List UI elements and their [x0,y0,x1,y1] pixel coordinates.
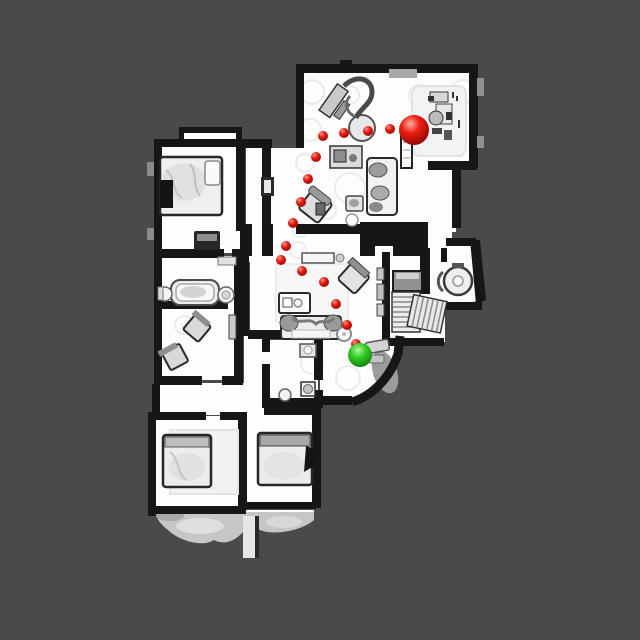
wall-segment [238,412,247,510]
bathtub [171,280,219,305]
wall-segment [246,502,316,509]
dresser [393,271,422,291]
wall-segment [296,64,478,73]
terrace-step-edge [255,516,259,558]
nav-waypoint [303,174,313,184]
side-stand [316,203,325,215]
floor-lamp [346,214,358,226]
nav-waypoint [319,277,329,287]
wall-segment [262,336,270,352]
pantry-shelves [377,268,384,316]
nav-waypoint [276,255,286,265]
nav-waypoint [331,299,341,309]
console-table [302,253,344,263]
window-tab [147,162,154,176]
wall-segment [156,139,248,147]
wc-toilet [301,382,315,396]
kitchen-island [279,293,310,313]
nav-waypoint [339,128,349,138]
window-tab [147,228,154,240]
wall-segment [150,506,246,514]
office-shelf [229,315,236,339]
wall-segment [264,406,320,415]
wall-segment [262,224,273,256]
wc-vanity [300,344,316,357]
wall-segment [156,249,224,258]
nav-waypoint [342,320,352,330]
ottoman [346,196,363,211]
wall-segment [384,338,444,346]
wall-segment [360,222,428,246]
nav-waypoint [297,266,307,276]
bath-shelf [218,257,236,265]
wall-segment [236,143,245,231]
bed [258,433,312,485]
wall-segment [441,248,447,262]
wall-segment [236,127,242,144]
nav-waypoint [288,218,298,228]
nav-waypoint [385,124,395,134]
goal-marker [348,343,372,367]
window-tab [389,69,417,78]
wall-segment [240,224,252,256]
sofa [367,158,397,215]
wall-segment [452,168,461,228]
sink [218,287,234,303]
window-tab [477,78,484,96]
stairs-lower-flight [407,295,447,333]
hallway-floor [156,383,248,415]
wall-segment [179,127,184,144]
tv-unit [330,146,362,168]
start-marker [399,115,429,145]
wall-segment [360,246,375,256]
wall-segment [446,302,482,310]
wall-segment [154,263,162,384]
wall-segment [266,398,316,406]
floor-plan-map [0,0,640,640]
wall-segment [242,256,249,336]
terrace-highlight [266,516,302,528]
scan-hole [160,180,173,208]
wall-segment [222,376,236,385]
wall-cabinet [261,177,274,196]
wall-segment [296,64,304,148]
bed-bench [194,231,220,250]
window-tab [477,136,484,148]
nav-waypoint [281,241,291,251]
wall-segment [318,396,352,405]
terrace-highlight [176,518,224,534]
wall-segment [469,64,478,168]
wall-segment [148,412,156,516]
toilet [158,287,172,301]
wall-segment [262,146,271,182]
bed [163,435,211,487]
couch [280,315,342,339]
nav-waypoint [296,197,306,207]
wall-segment [340,60,352,68]
nav-waypoint [311,152,321,162]
screenshot-root [0,0,640,640]
nav-waypoint [363,126,373,136]
wall-segment [152,412,206,420]
nav-waypoint [318,131,328,141]
wall-segment [156,376,202,385]
wall-segment [179,127,242,133]
wc-bidet [279,389,291,401]
